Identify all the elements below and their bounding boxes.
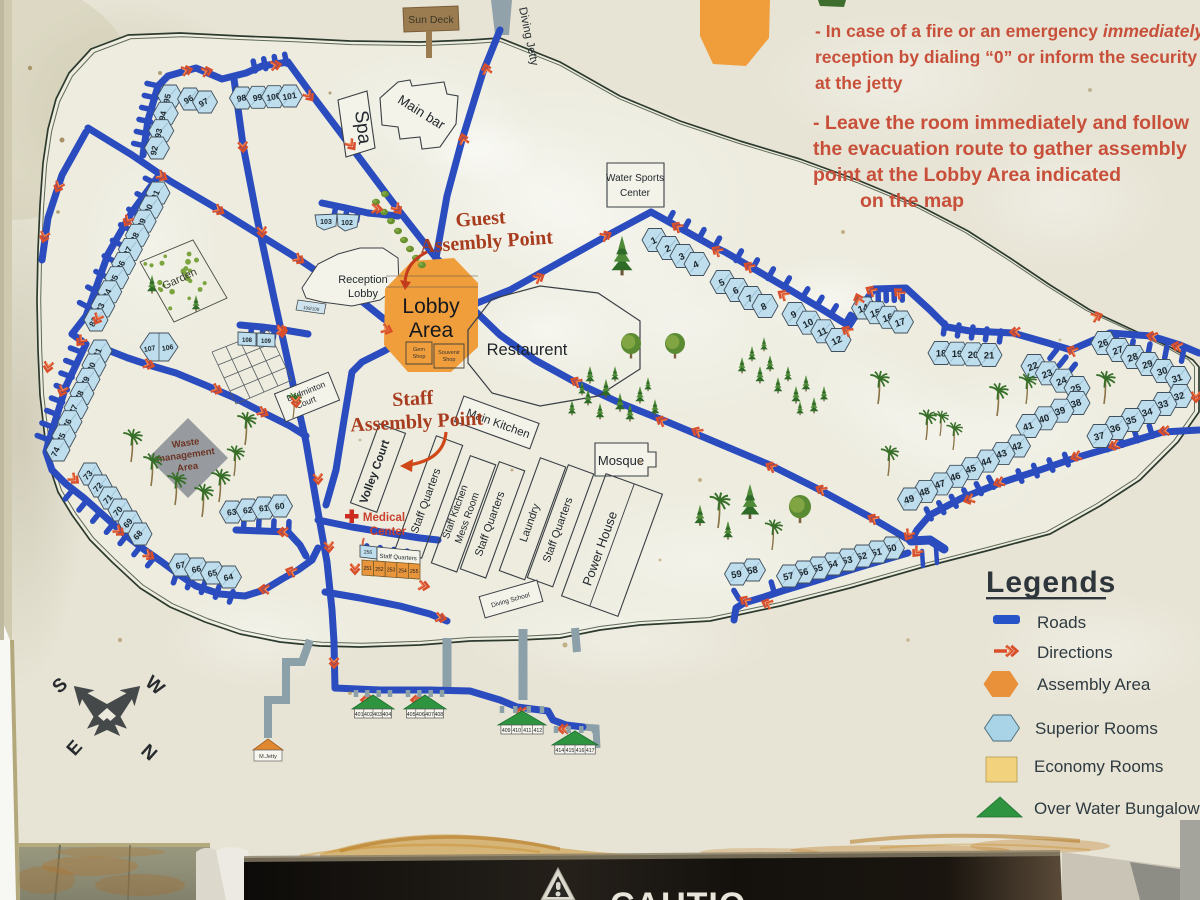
svg-text:405: 405 bbox=[407, 712, 416, 718]
svg-text:251: 251 bbox=[364, 566, 373, 572]
svg-text:- Leave the room immediately a: - Leave the room immediately and follow bbox=[813, 112, 1190, 134]
svg-text:61: 61 bbox=[259, 503, 270, 514]
svg-text:Spa: Spa bbox=[350, 109, 375, 146]
svg-text:102: 102 bbox=[341, 220, 353, 227]
svg-text:402: 402 bbox=[364, 712, 373, 718]
svg-text:at the jetty: at the jetty bbox=[815, 73, 903, 93]
svg-text:57: 57 bbox=[782, 570, 795, 583]
svg-text:Shop: Shop bbox=[413, 354, 426, 360]
svg-text:Area: Area bbox=[409, 319, 454, 342]
svg-text:108: 108 bbox=[242, 338, 253, 344]
svg-text:Over Water Bungalows: Over Water Bungalows bbox=[1034, 799, 1200, 818]
svg-text:412: 412 bbox=[534, 728, 543, 734]
svg-text:reception by dialing “0” or in: reception by dialing “0” or inform the s… bbox=[815, 47, 1197, 67]
svg-text:Lobby: Lobby bbox=[402, 295, 460, 318]
svg-text:410: 410 bbox=[512, 728, 521, 734]
svg-text:401: 401 bbox=[355, 712, 364, 718]
svg-text:Staff: Staff bbox=[392, 387, 435, 411]
svg-text:Medical: Medical bbox=[363, 512, 405, 524]
svg-text:414: 414 bbox=[555, 748, 564, 754]
svg-text:on the map: on the map bbox=[860, 190, 964, 212]
svg-text:Souvenir: Souvenir bbox=[438, 350, 460, 356]
svg-text:409: 409 bbox=[502, 728, 511, 734]
svg-text:Reception: Reception bbox=[338, 274, 388, 286]
svg-text:416: 416 bbox=[576, 748, 585, 754]
svg-text:406: 406 bbox=[416, 712, 425, 718]
svg-text:Mosque: Mosque bbox=[598, 453, 644, 468]
svg-text:109: 109 bbox=[261, 339, 272, 345]
svg-text:63: 63 bbox=[227, 507, 238, 518]
svg-text:256: 256 bbox=[364, 550, 373, 556]
svg-text:the evacuation route to gather: the evacuation route to gather assembly bbox=[813, 138, 1187, 160]
svg-text:408: 408 bbox=[435, 712, 444, 718]
svg-text:103: 103 bbox=[320, 219, 332, 226]
svg-text:62: 62 bbox=[243, 505, 254, 516]
svg-text:59: 59 bbox=[730, 569, 742, 582]
svg-text:252: 252 bbox=[375, 567, 384, 573]
svg-text:Center: Center bbox=[620, 188, 651, 199]
svg-text:CAUTIO: CAUTIO bbox=[610, 886, 746, 900]
svg-text:Superior Rooms: Superior Rooms bbox=[1035, 719, 1158, 738]
svg-text:- In case of a fire or an emer: - In case of a fire or an emergency imme… bbox=[815, 21, 1200, 41]
svg-text:Legends: Legends bbox=[986, 566, 1116, 599]
svg-text:417: 417 bbox=[586, 748, 595, 754]
svg-text:Water Sports: Water Sports bbox=[606, 173, 664, 184]
svg-text:407: 407 bbox=[425, 712, 434, 718]
svg-text:404: 404 bbox=[383, 712, 392, 718]
svg-text:403: 403 bbox=[373, 712, 382, 718]
svg-text:254: 254 bbox=[398, 568, 407, 574]
svg-text:21: 21 bbox=[984, 350, 995, 361]
svg-text:415: 415 bbox=[566, 748, 575, 754]
svg-text:Shop: Shop bbox=[443, 357, 456, 363]
svg-text:Lobby: Lobby bbox=[348, 288, 378, 300]
svg-text:Economy Rooms: Economy Rooms bbox=[1034, 757, 1163, 776]
svg-text:255: 255 bbox=[410, 569, 419, 575]
svg-text:60: 60 bbox=[275, 501, 286, 512]
svg-text:M.Jetty: M.Jetty bbox=[259, 754, 277, 760]
svg-text:411: 411 bbox=[523, 728, 531, 734]
svg-text:Guest: Guest bbox=[455, 206, 507, 231]
svg-text:point at the Lobby Area indica: point at the Lobby Area indicated bbox=[813, 164, 1121, 186]
svg-text:Center: Center bbox=[370, 526, 407, 538]
svg-text:Assembly Area: Assembly Area bbox=[1037, 675, 1151, 694]
svg-text:Gem: Gem bbox=[413, 347, 425, 353]
svg-text:Restaurent: Restaurent bbox=[487, 341, 568, 359]
svg-text:Sun Deck: Sun Deck bbox=[408, 14, 454, 26]
svg-text:Directions: Directions bbox=[1037, 643, 1113, 662]
svg-text:Roads: Roads bbox=[1037, 613, 1086, 632]
svg-text:253: 253 bbox=[387, 568, 396, 574]
